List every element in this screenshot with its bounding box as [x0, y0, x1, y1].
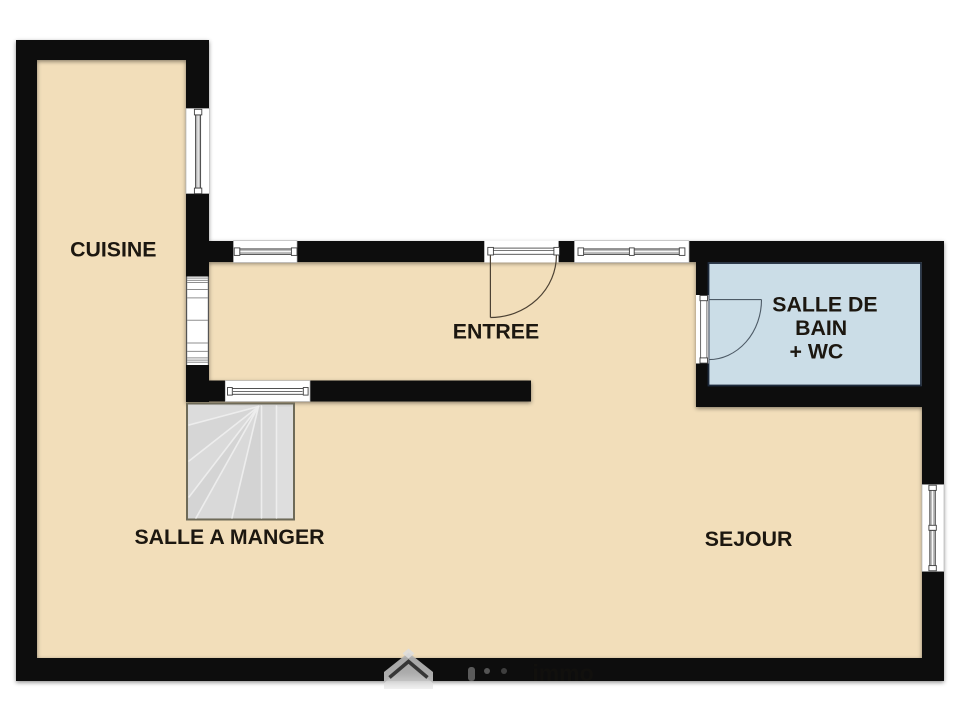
svg-text:SALLE A MANGER: SALLE A MANGER [134, 525, 324, 549]
svg-text:SALLE DE: SALLE DE [772, 293, 877, 317]
svg-text:SEJOUR: SEJOUR [705, 527, 793, 551]
svg-text:immo: immo [532, 660, 593, 686]
svg-text:+ WC: + WC [789, 339, 843, 363]
svg-text:BAIN: BAIN [795, 316, 847, 340]
svg-text:ENTREE: ENTREE [453, 319, 539, 343]
svg-text:CUISINE: CUISINE [70, 238, 156, 262]
